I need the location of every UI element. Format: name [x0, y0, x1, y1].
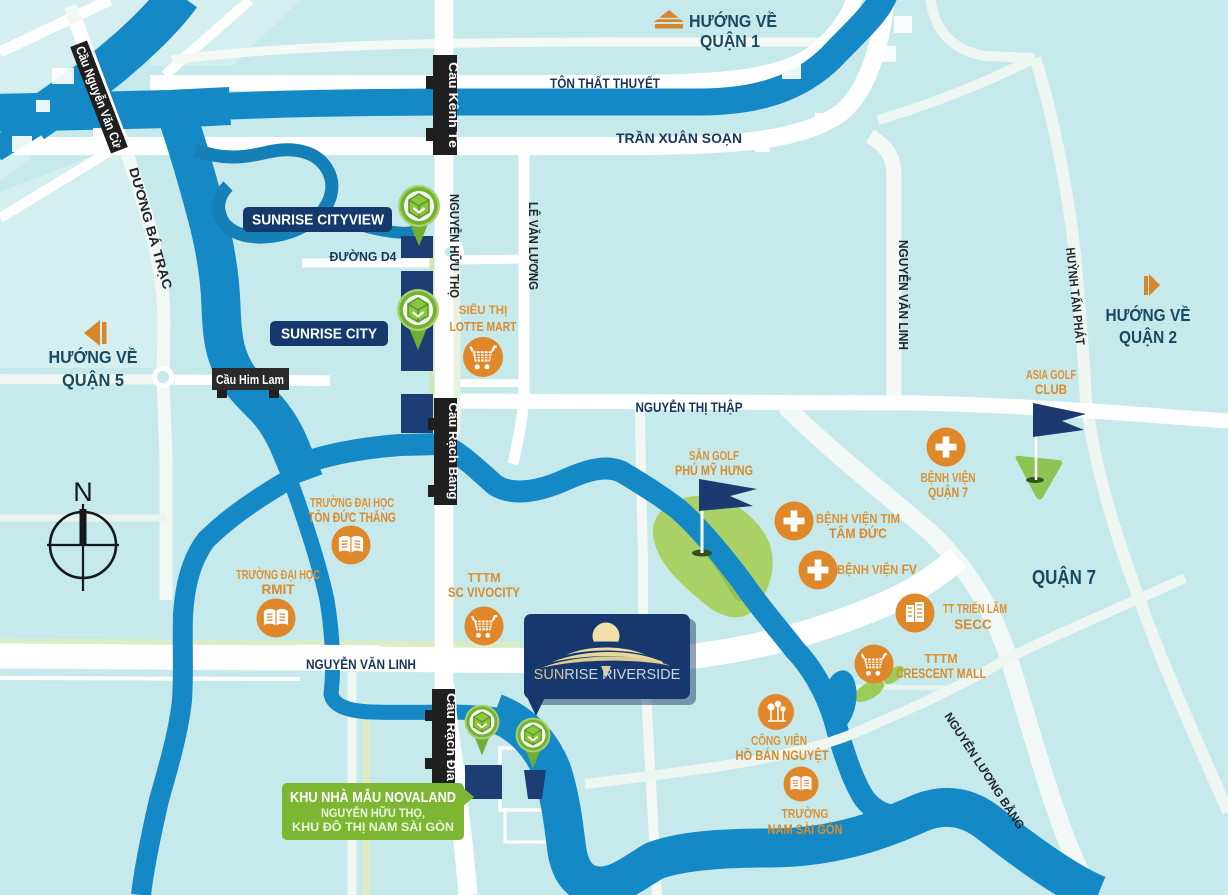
svg-text:Cầu Rạch Đĩa: Cầu Rạch Đĩa	[444, 693, 459, 782]
svg-text:Cầu Rạch Bàng: Cầu Rạch Bàng	[446, 403, 461, 500]
svg-text:Cầu Kênh Tẻ: Cầu Kênh Tẻ	[446, 62, 461, 148]
svg-text:CRESCENT MALL: CRESCENT MALL	[896, 666, 986, 681]
svg-text:SUNRISE CITY: SUNRISE CITY	[281, 327, 377, 343]
svg-text:TT TRIỂN LÃM: TT TRIỂN LÃM	[943, 601, 1007, 616]
svg-text:SUNRISE CITYVIEW: SUNRISE CITYVIEW	[252, 213, 384, 229]
svg-text:SIÊU THỊ: SIÊU THỊ	[459, 304, 508, 317]
svg-text:TTTM: TTTM	[924, 652, 957, 666]
svg-text:TTTM: TTTM	[467, 571, 500, 585]
svg-text:CLUB: CLUB	[1035, 382, 1067, 397]
svg-text:LÊ VĂN LƯƠNG: LÊ VĂN LƯƠNG	[526, 202, 541, 290]
svg-text:ĐƯỜNG D4: ĐƯỜNG D4	[330, 249, 397, 264]
svg-text:Cầu Him Lam: Cầu Him Lam	[216, 372, 284, 387]
svg-text:NGUYỄN VĂN LINH: NGUYỄN VĂN LINH	[896, 240, 911, 350]
svg-text:BỆNH VIỆN FV: BỆNH VIỆN FV	[837, 562, 917, 577]
svg-text:TÔN ĐỨC THẮNG: TÔN ĐỨC THẮNG	[308, 510, 396, 525]
svg-text:TRƯỜNG ĐẠI HỌC: TRƯỜNG ĐẠI HỌC	[310, 495, 394, 510]
svg-text:TRƯỜNG ĐẠI HỌC: TRƯỜNG ĐẠI HỌC	[236, 567, 320, 582]
svg-text:QUẬN 2: QUẬN 2	[1119, 326, 1177, 347]
svg-text:QUẬN 7: QUẬN 7	[1032, 565, 1096, 589]
svg-text:HƯỚNG VỀ: HƯỚNG VỀ	[1106, 304, 1191, 325]
svg-text:KHU NHÀ MẪU NOVALAND: KHU NHÀ MẪU NOVALAND	[290, 789, 456, 806]
svg-text:LOTTE MART: LOTTE MART	[450, 319, 517, 334]
svg-text:NGUYỄN HỮU THỌ: NGUYỄN HỮU THỌ	[447, 194, 462, 298]
svg-text:QUẬN 7: QUẬN 7	[928, 485, 968, 500]
svg-text:SÂN GOLF: SÂN GOLF	[689, 448, 739, 463]
svg-text:TÔN THẤT THUYẾT: TÔN THẤT THUYẾT	[550, 74, 660, 91]
svg-text:NGUYỄN HỮU THỌ,: NGUYỄN HỮU THỌ,	[321, 805, 425, 820]
svg-text:RMIT: RMIT	[262, 582, 296, 597]
svg-text:N: N	[73, 477, 93, 507]
svg-text:NAM SÀI GÒN: NAM SÀI GÒN	[768, 822, 843, 837]
svg-text:KHU ĐÔ THỊ NAM SÀI GÒN: KHU ĐÔ THỊ NAM SÀI GÒN	[292, 819, 454, 834]
svg-text:HỒ BÁN NGUYỆT: HỒ BÁN NGUYỆT	[736, 748, 830, 763]
svg-text:TRẦN XUÂN SOẠN: TRẦN XUÂN SOẠN	[616, 129, 742, 146]
svg-text:SECC: SECC	[954, 617, 992, 632]
svg-text:QUẬN 1: QUẬN 1	[700, 30, 760, 51]
svg-text:HƯỚNG VỀ: HƯỚNG VỀ	[49, 346, 138, 367]
svg-text:TRƯỜNG: TRƯỜNG	[782, 806, 829, 821]
svg-text:BỆNH VIỆN TIM: BỆNH VIỆN TIM	[816, 511, 900, 526]
svg-text:BỆNH VIỆN: BỆNH VIỆN	[921, 470, 976, 485]
svg-text:ASIA GOLF: ASIA GOLF	[1026, 368, 1076, 382]
svg-text:CÔNG VIÊN: CÔNG VIÊN	[751, 733, 807, 748]
svg-text:TÂM ĐỨC: TÂM ĐỨC	[829, 526, 887, 541]
svg-text:QUẬN 5: QUẬN 5	[62, 369, 124, 390]
svg-text:SC VIVOCITY: SC VIVOCITY	[448, 585, 520, 600]
svg-text:SUNRISE RIVERSIDE: SUNRISE RIVERSIDE	[534, 667, 681, 683]
svg-text:HƯỚNG VỀ: HƯỚNG VỀ	[689, 10, 777, 31]
svg-text:NGUYỄN VĂN LINH: NGUYỄN VĂN LINH	[306, 656, 416, 672]
svg-text:NGUYỄN THỊ THẬP: NGUYỄN THỊ THẬP	[636, 398, 743, 415]
svg-text:PHÚ MỸ HƯNG: PHÚ MỸ HƯNG	[675, 463, 753, 478]
